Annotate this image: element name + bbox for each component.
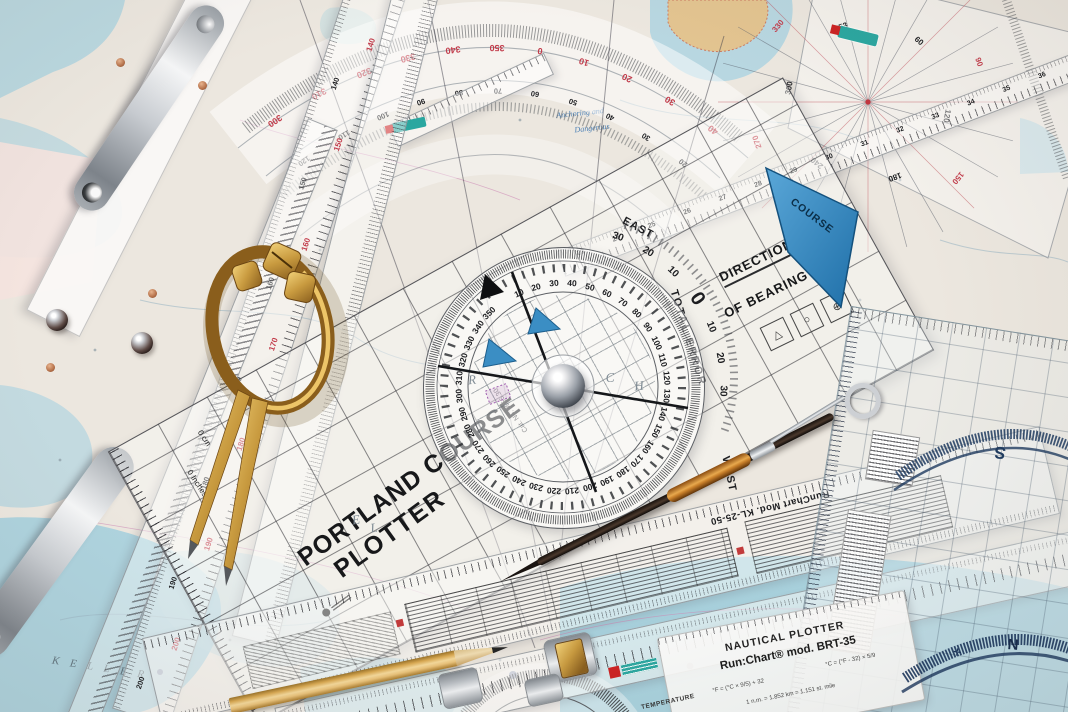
brass-dividers — [0, 0, 1068, 712]
pen-tip — [499, 558, 543, 584]
divider-nut-right — [283, 270, 316, 303]
pen-collar — [749, 441, 777, 462]
photo-nautical-chart-scene: K E L L E R E L Anchoring and Dangerous … — [0, 0, 1068, 712]
